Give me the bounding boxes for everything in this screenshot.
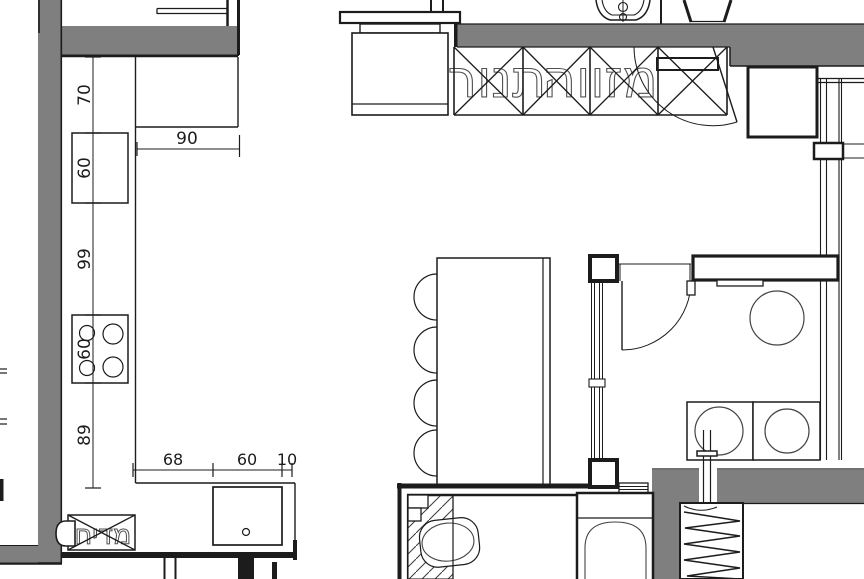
fridge xyxy=(748,67,817,137)
shower-step xyxy=(408,495,428,508)
wall-top-left xyxy=(38,26,239,55)
wall-stub-bottom-left xyxy=(0,545,38,562)
dishwasher: מדיח xyxy=(68,515,135,551)
bathtub xyxy=(577,493,653,579)
track-coupler xyxy=(589,379,605,387)
wall-fragment-left-edge xyxy=(0,479,4,501)
dining-table xyxy=(437,258,550,487)
wall-top-right-cap xyxy=(454,24,458,47)
dim-label-10: 10 xyxy=(277,450,297,469)
dim-label-99: 99 xyxy=(75,248,95,270)
shower-step xyxy=(408,508,421,521)
floor-plan-canvas: תנור מזווה מדיח xyxy=(0,0,864,579)
wall-left xyxy=(38,0,62,563)
kitchen-top-counter xyxy=(340,0,460,115)
wall-top-right xyxy=(454,24,864,47)
floor-plan-page: תנור מזווה מדיח xyxy=(0,0,864,579)
oven-unit xyxy=(352,33,448,115)
wall-bottom-right-horizontal xyxy=(652,470,864,503)
label-oven: תנור xyxy=(448,50,547,110)
counter-ledge xyxy=(340,12,460,23)
wall-pilaster xyxy=(56,521,75,546)
washbasin xyxy=(418,516,482,569)
wall-stub-small xyxy=(272,562,277,579)
dim-label-60a: 60 xyxy=(75,157,95,179)
dim-label-89: 89 xyxy=(75,424,95,446)
counter-end-post xyxy=(293,540,297,560)
partition-pier-bottom xyxy=(590,460,617,487)
dim-label-68: 68 xyxy=(163,450,183,469)
dim-label-60c: 60 xyxy=(237,450,257,469)
wall-stub-t xyxy=(238,558,254,579)
water-heater xyxy=(680,503,743,579)
label-dishwasher: מדיח xyxy=(75,520,132,551)
dim-label-90: 90 xyxy=(176,129,198,149)
sink-basin xyxy=(213,487,282,545)
tap-fitting xyxy=(697,451,717,456)
channel-pier xyxy=(814,143,843,159)
partition-pier-top xyxy=(590,256,617,281)
dryer-box xyxy=(753,402,820,460)
label-pantry: מזווה xyxy=(542,50,658,110)
bathtub-outline xyxy=(577,493,653,579)
counter-notch xyxy=(717,280,763,286)
wall-pipe-gap xyxy=(699,470,717,503)
oven-unit-back xyxy=(360,24,440,33)
dim-label-70: 70 xyxy=(75,84,95,106)
door-strike-frame xyxy=(687,281,695,295)
wall-top-right-thick xyxy=(730,47,864,66)
counter-front-thick-line xyxy=(62,552,297,558)
utility-counter xyxy=(693,256,838,280)
dim-label-60b: 60 xyxy=(75,338,95,360)
wall-bottom-right-vertical xyxy=(652,470,680,579)
